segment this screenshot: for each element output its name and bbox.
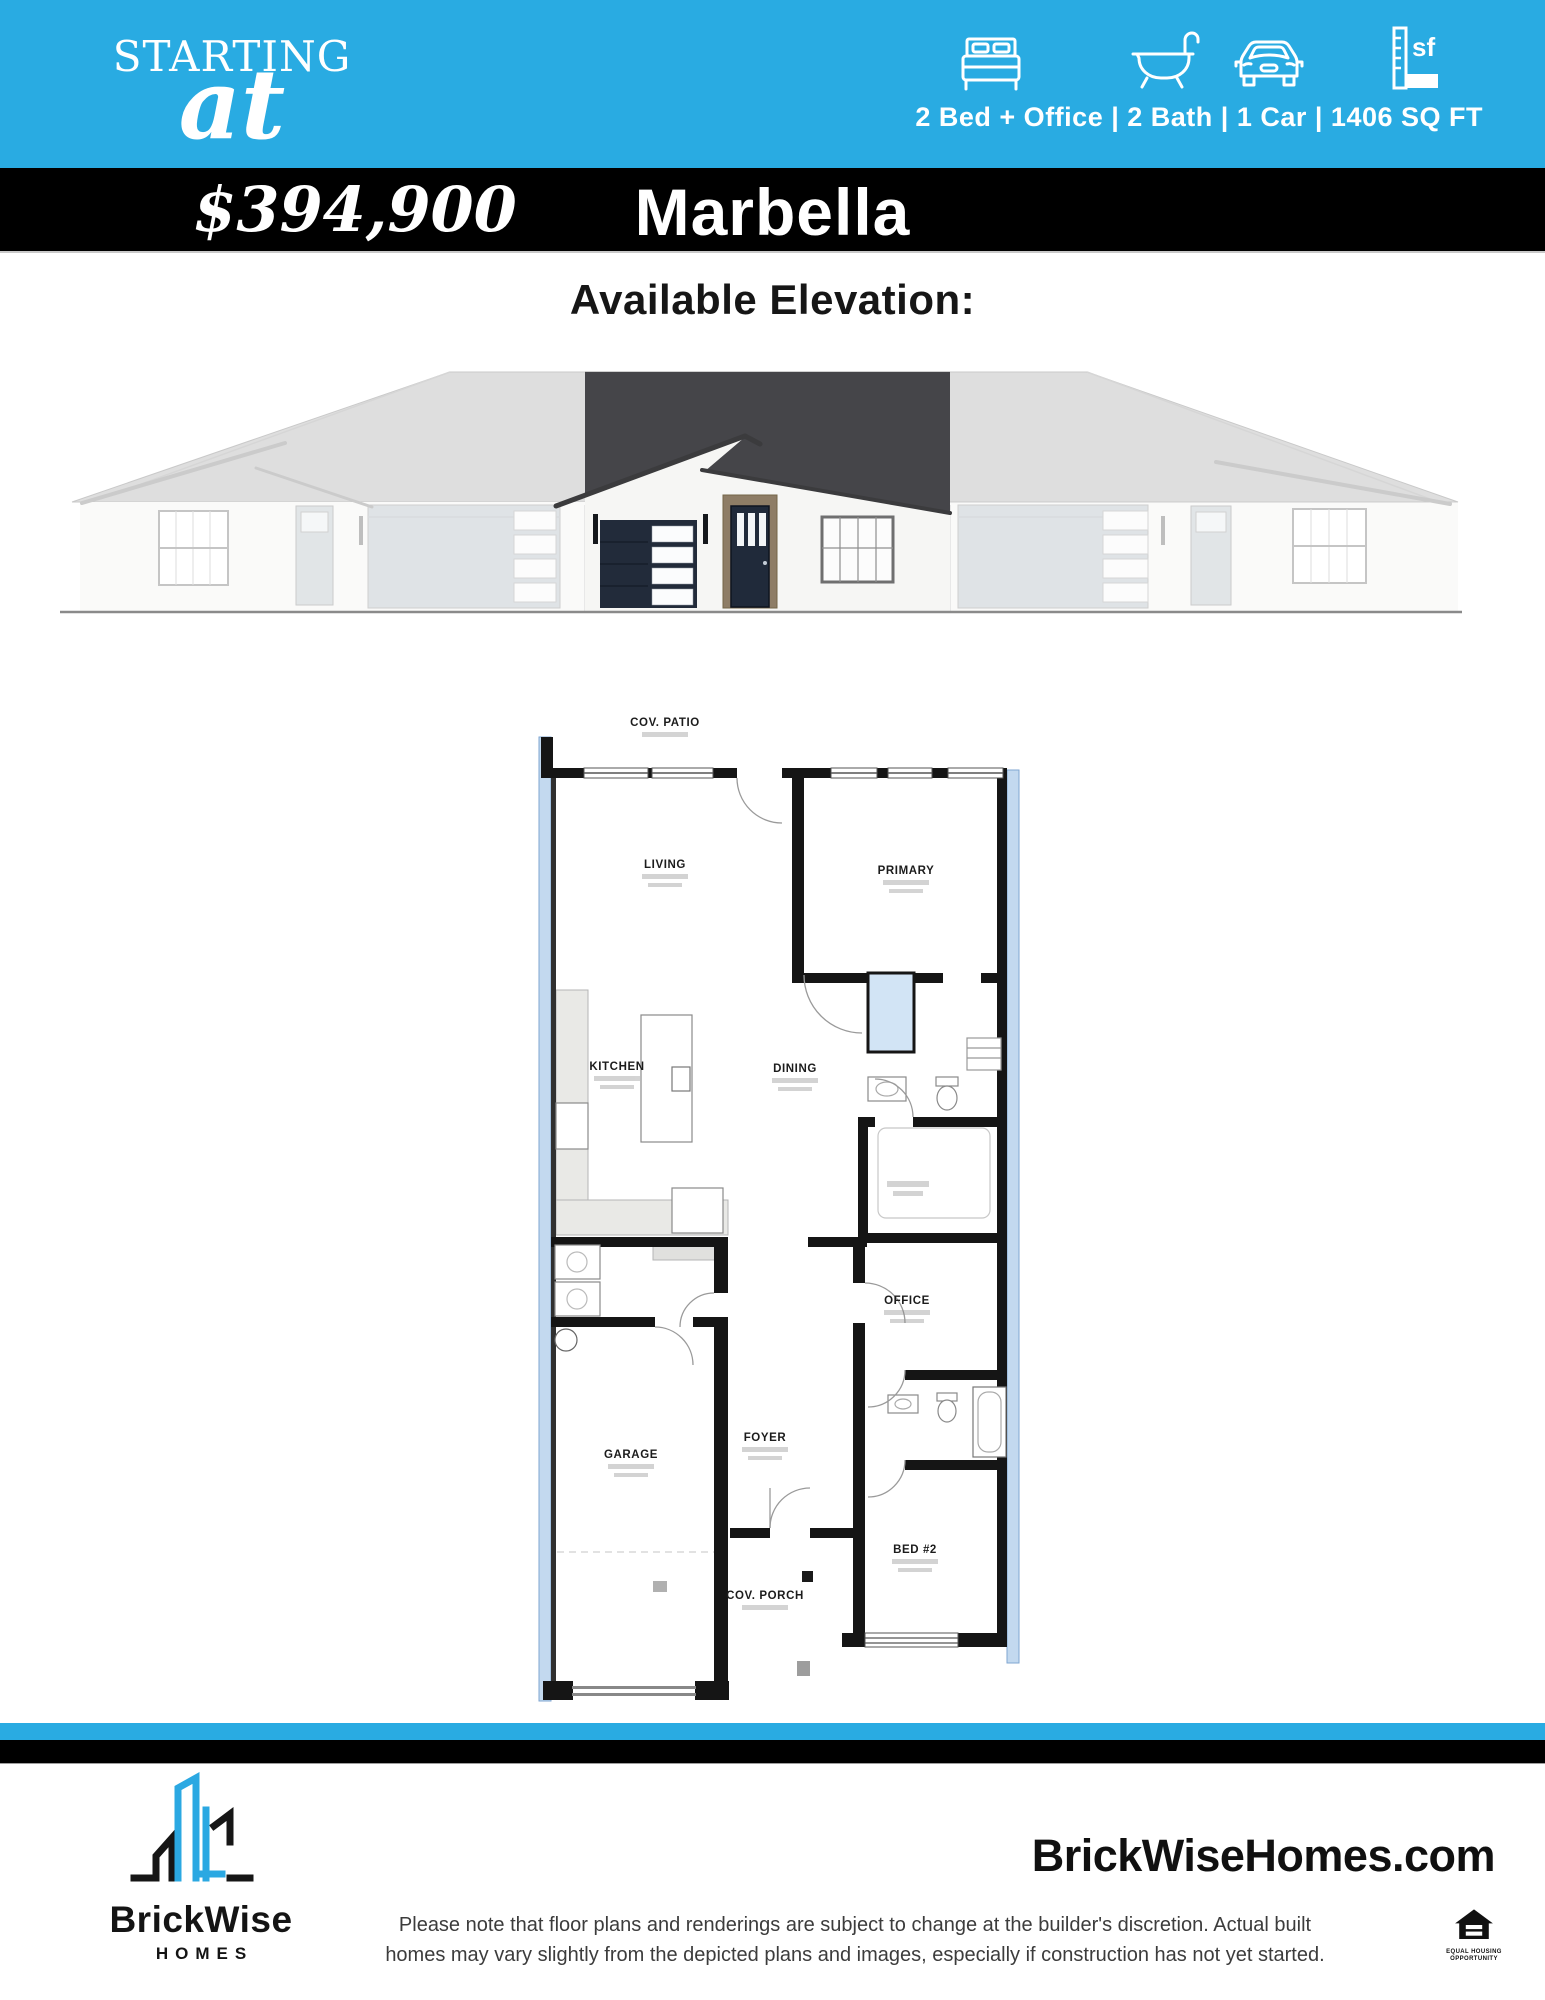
porch-posts	[557, 1552, 813, 1676]
bed-icon	[959, 36, 1023, 94]
flyer-page: STARTING at	[0, 0, 1545, 2000]
right-unit-fade	[950, 365, 1465, 615]
room-label-living: LIVING	[644, 859, 686, 871]
room-label-garage: GARAGE	[604, 1449, 658, 1461]
room-label-cov-patio: COV. PATIO	[630, 717, 700, 729]
room-label-cov-porch: COV. PORCH	[726, 1590, 804, 1602]
room-label-foyer: FOYER	[744, 1432, 787, 1444]
bottom-blue-stripe	[0, 1723, 1545, 1740]
brickwise-logo	[126, 1772, 258, 1896]
room-label-office: OFFICE	[884, 1295, 930, 1307]
eho-text-line2: OPPORTUNITY	[1444, 1956, 1504, 1963]
brand-name: BrickWise	[96, 1899, 306, 1941]
at-label: at	[100, 50, 364, 160]
available-elevation-heading: Available Elevation:	[0, 276, 1545, 324]
brand-sub: HOMES	[96, 1944, 306, 1964]
website-url: BrickWiseHomes.com	[1032, 1830, 1495, 1882]
door-arcs	[655, 778, 913, 1528]
disclaimer-text: Please note that floor plans and renderi…	[300, 1910, 1410, 1970]
left-unit-fade	[60, 365, 585, 615]
bath-icon	[1129, 26, 1201, 92]
disclaimer-line-2: homes may vary slightly from the depicte…	[300, 1940, 1410, 1970]
room-label-bed2: BED #2	[893, 1544, 937, 1556]
equal-housing-logo: EQUAL HOUSING OPPORTUNITY	[1444, 1906, 1504, 1963]
header-black-bar: $394,900 Marbella	[0, 168, 1545, 253]
spec-summary: 2 Bed + Office | 2 Bath | 1 Car | 1406 S…	[915, 102, 1483, 133]
center-unit	[556, 372, 950, 612]
plan-name-title: Marbella	[0, 168, 1545, 251]
car-icon	[1231, 30, 1307, 92]
bottom-black-stripe	[0, 1740, 1545, 1764]
primary-shower	[868, 973, 914, 1052]
equal-housing-house-icon	[1451, 1906, 1497, 1944]
sqft-ruler-icon: sf	[1382, 24, 1442, 96]
disclaimer-line-1: Please note that floor plans and renderi…	[300, 1910, 1410, 1940]
floor-plan: COV. PATIO LIVING PRIMARY KITCHEN DINING…	[535, 695, 1025, 1705]
elevation-rendering	[60, 365, 1465, 615]
header-blue-bar: STARTING at	[0, 0, 1545, 168]
eho-text-line1: EQUAL HOUSING	[1444, 1949, 1504, 1956]
room-label-dining: DINING	[773, 1063, 817, 1075]
svg-text:sf: sf	[1412, 32, 1435, 62]
room-label-primary: PRIMARY	[878, 865, 935, 877]
room-label-kitchen: KITCHEN	[589, 1061, 644, 1073]
